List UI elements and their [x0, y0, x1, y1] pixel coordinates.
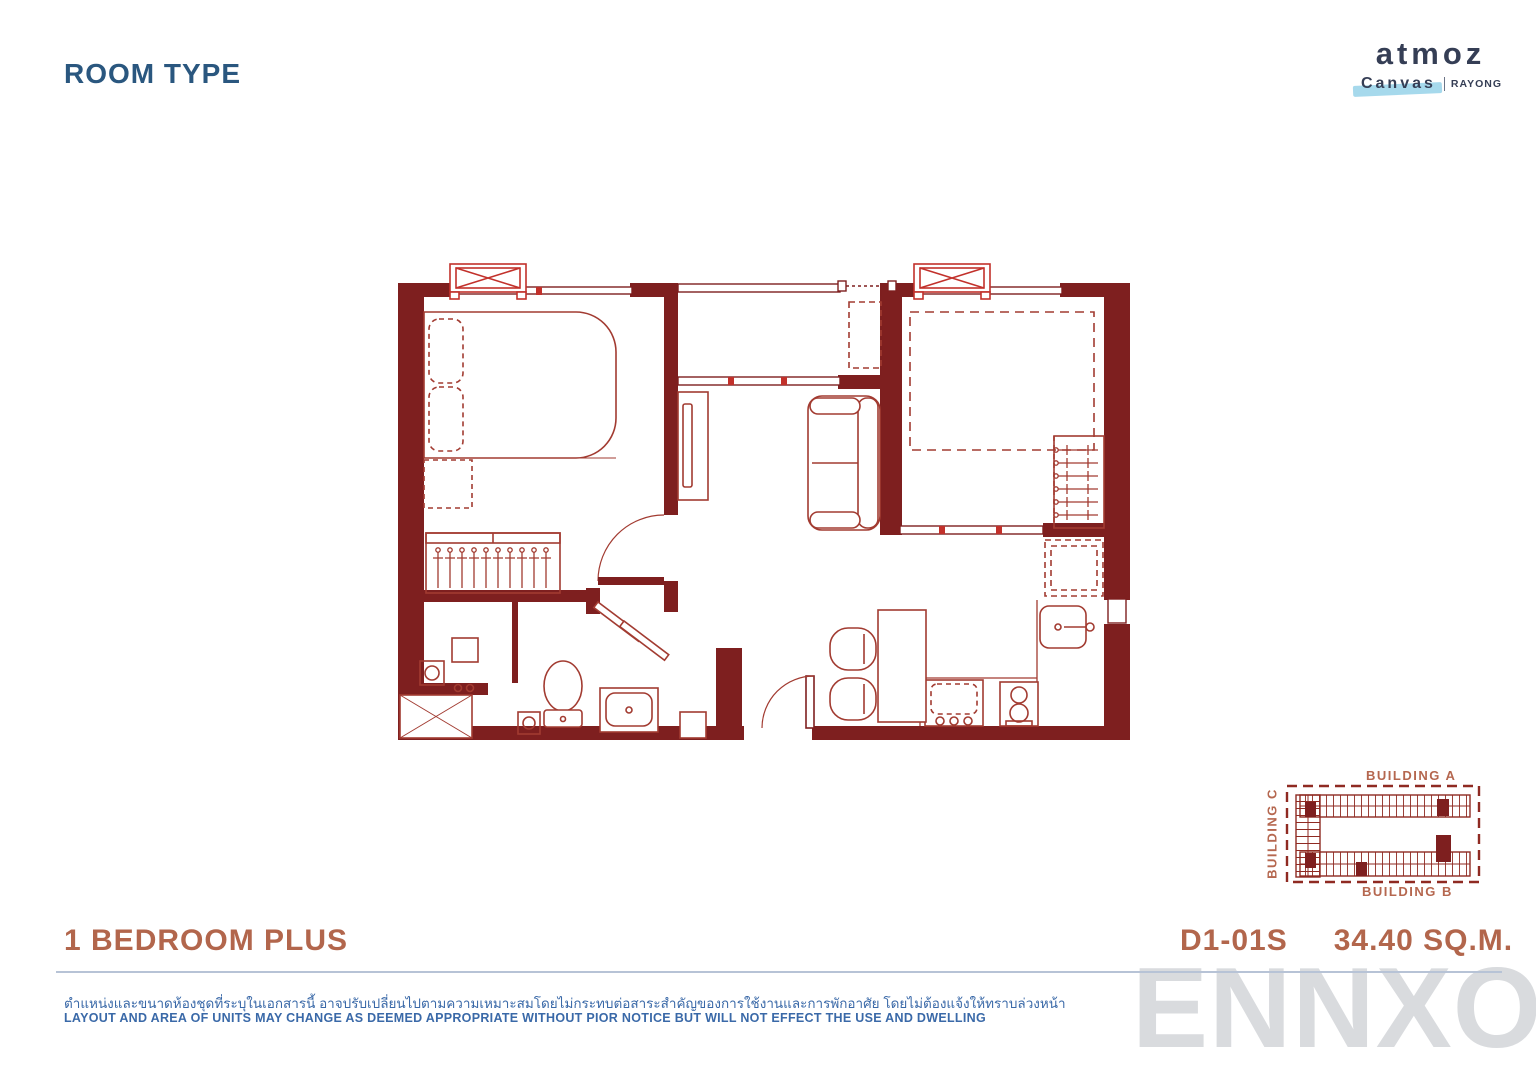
brand-logo: atmoz Canvas RAYONG [1358, 38, 1503, 93]
page-title: ROOM TYPE [64, 58, 241, 90]
brand-name: atmoz [1358, 38, 1503, 69]
disclaimer-english: LAYOUT AND AREA OF UNITS MAY CHANGE AS D… [64, 1011, 986, 1025]
site-map [1287, 786, 1479, 882]
bedroom-door [598, 515, 664, 585]
bedroom-wardrobe-hangers [433, 548, 551, 588]
plus-wardrobe-hangers [1054, 445, 1098, 520]
kitchen-furniture [830, 540, 1103, 726]
brand-sub-brand: Canvas [1359, 75, 1438, 93]
logo-divider [1444, 77, 1445, 91]
brand-location: RAYONG [1451, 78, 1502, 90]
unit-type-label: 1 BEDROOM PLUS [64, 924, 348, 958]
footer-divider [56, 971, 1502, 973]
brand-subline: Canvas RAYONG [1358, 75, 1503, 93]
entrance-door [762, 676, 814, 728]
plus-room-furniture [910, 312, 1104, 528]
living-furniture [678, 302, 881, 738]
bathroom-sliding-door [594, 602, 669, 660]
building-a-label: BUILDING A [1366, 768, 1456, 783]
watermark: ENNXO [1132, 952, 1536, 1066]
building-c-label: BUILDING C [1265, 774, 1280, 894]
building-b-label: BUILDING B [1362, 884, 1453, 899]
